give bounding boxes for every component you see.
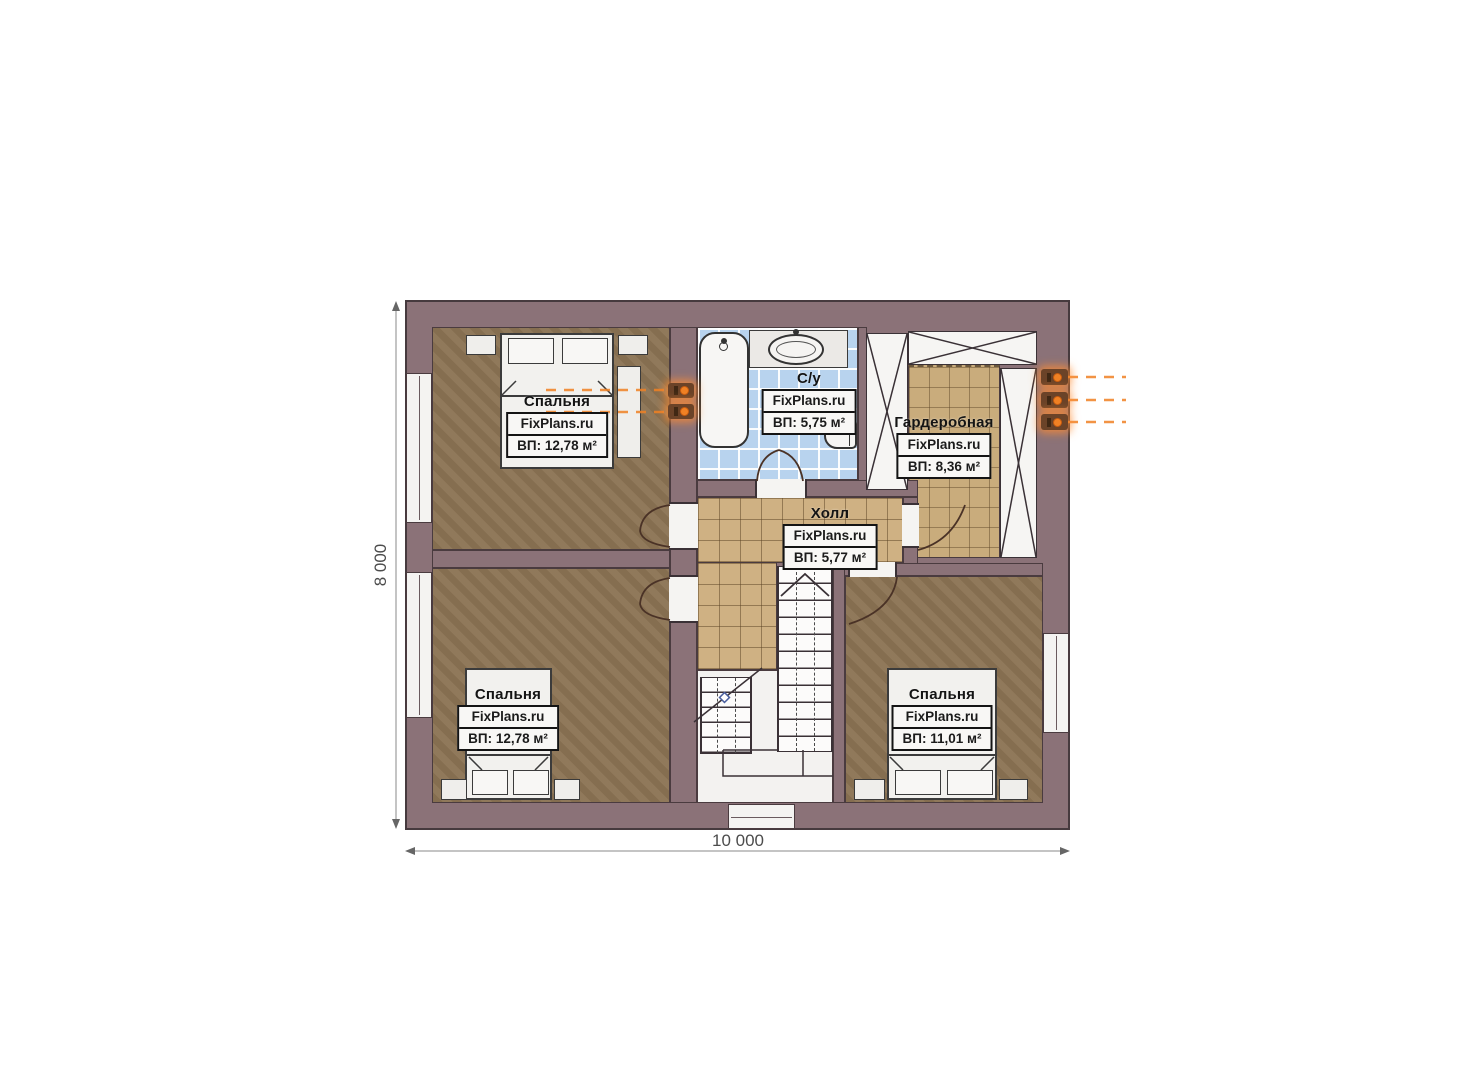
room-label-bedroom-bottom-left: Спальня FixPlans.ru ВП: 12,78 м² [457,686,559,751]
dimension-arrow [1060,847,1070,855]
bathtub [699,332,749,448]
watermark-brand: FixPlans.ru [508,414,606,434]
dimension-arrow [405,847,415,855]
room-label-bedroom-top-left: Спальня FixPlans.ru ВП: 12,78 м² [506,393,608,458]
power-outlet-icon [668,383,694,398]
room-area: ВП: 8,36 м² [899,455,990,477]
sink-faucet-icon [793,329,799,335]
watermark-brand: FixPlans.ru [764,391,855,411]
window-left-bottom [406,572,432,718]
nightstand [999,779,1028,800]
room-info-box: FixPlans.ru ВП: 5,77 м² [783,524,878,570]
wall-bedrooms-hall [670,327,697,803]
dimension-height-label: 8 000 [371,515,391,615]
dimension-width-label: 10 000 [688,831,788,851]
room-label-hall: Холл FixPlans.ru ВП: 5,77 м² [783,505,878,570]
wall-stairs-bedroom [833,563,845,803]
room-info-box: FixPlans.ru ВП: 12,78 м² [457,705,559,751]
cabinet-x-icon [909,332,1036,364]
room-name: Спальня [475,686,541,703]
floor-plan-canvas: Спальня FixPlans.ru ВП: 12,78 м² С/у Fix… [0,0,1473,1080]
nightstand [618,335,648,355]
staircase-lower-flight [700,677,752,754]
wardrobe-cabinet-right [1000,368,1037,558]
wall-between-left-bedrooms [432,550,670,568]
room-name: С/у [797,370,821,387]
room-name: Холл [811,505,849,522]
watermark-brand: FixPlans.ru [894,707,991,727]
dimension-arrow [392,301,400,311]
window-left-top [406,373,432,523]
nightstand [466,335,496,355]
nightstand [554,779,580,800]
hall-floor-lower [697,563,777,670]
room-name: Спальня [909,686,975,703]
room-area: ВП: 12,78 м² [508,434,606,456]
wardrobe-cabinet-top [908,331,1037,365]
window-right-bedroom [1043,633,1069,733]
watermark-brand: FixPlans.ru [899,435,990,455]
room-label-bedroom-bottom-right: Спальня FixPlans.ru ВП: 11,01 м² [892,686,993,751]
room-area: ВП: 12,78 м² [459,727,557,749]
door-bedroom-bottom-left [669,575,698,623]
room-area: ВП: 5,75 м² [764,411,855,433]
nightstand [854,779,885,800]
room-name: Гардеробная [894,414,993,431]
cabinet-x-icon [1001,369,1036,557]
room-label-bathroom: С/у FixPlans.ru ВП: 5,75 м² [762,370,857,435]
room-label-wardrobe: Гардеробная FixPlans.ru ВП: 8,36 м² [894,414,993,479]
room-info-box: FixPlans.ru ВП: 5,75 м² [762,389,857,435]
sink [768,334,824,365]
watermark-brand: FixPlans.ru [459,707,557,727]
room-info-box: FixPlans.ru ВП: 12,78 м² [506,412,608,458]
door-bathroom [755,479,807,498]
dimension-arrow [392,819,400,829]
power-outlet-icon [668,404,694,419]
power-outlet-icon [1041,392,1068,408]
tub-faucet-icon [721,338,727,344]
door-wardrobe [902,503,919,548]
room-area: ВП: 5,77 м² [785,546,876,568]
dresser [617,366,641,458]
nightstand [441,779,467,800]
room-info-box: FixPlans.ru ВП: 8,36 м² [897,433,992,479]
window-bottom-center [728,804,795,829]
watermark-brand: FixPlans.ru [785,526,876,546]
room-info-box: FixPlans.ru ВП: 11,01 м² [892,705,993,751]
door-bedroom-top-left [669,502,698,550]
room-area: ВП: 11,01 м² [894,727,991,749]
room-name: Спальня [524,393,590,410]
power-outlet-icon [1041,369,1068,385]
power-outlet-icon [1041,414,1068,430]
staircase-main-flight [777,566,833,752]
